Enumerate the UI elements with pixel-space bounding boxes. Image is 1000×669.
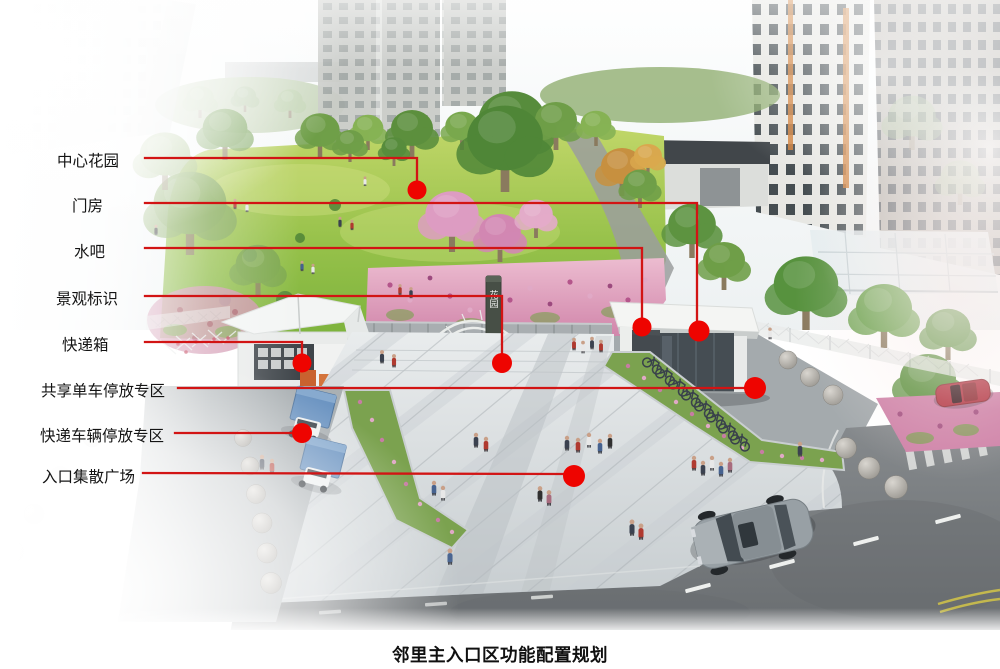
annotation-label-central-garden: 中心花园	[57, 149, 119, 171]
annotation-dot-shared-bike-parking	[744, 377, 766, 399]
annotation-label-entrance-plaza: 入口集散广场	[42, 465, 135, 487]
annotation-label-parcel-locker: 快递箱	[62, 333, 109, 355]
annotation-label-shared-bike-parking: 共享单车停放专区	[41, 379, 165, 401]
figure-caption: 邻里主入口区功能配置规划	[0, 642, 1000, 667]
garden-sign-text: 花园	[489, 289, 499, 309]
annotation-label-gatehouse: 门房	[72, 194, 103, 216]
annotation-label-water-bar: 水吧	[74, 240, 105, 262]
annotation-dot-landscape-signage	[492, 353, 512, 373]
annotation-dot-entrance-plaza	[563, 465, 585, 487]
site-plan-rendering: 花园	[0, 0, 1000, 669]
annotation-dot-central-garden	[408, 181, 427, 200]
annotation-dot-water-bar	[633, 318, 652, 337]
annotation-dot-gatehouse	[689, 321, 710, 342]
annotation-dot-courier-vehicle-parking	[292, 423, 312, 443]
page: 花园	[0, 0, 1000, 669]
annotation-line-entrance-plaza	[143, 473, 563, 474]
annotation-dot-parcel-locker	[293, 354, 312, 373]
annotation-label-courier-vehicle-parking: 快递车辆停放专区	[40, 424, 164, 446]
annotation-label-landscape-signage: 景观标识	[56, 287, 118, 309]
